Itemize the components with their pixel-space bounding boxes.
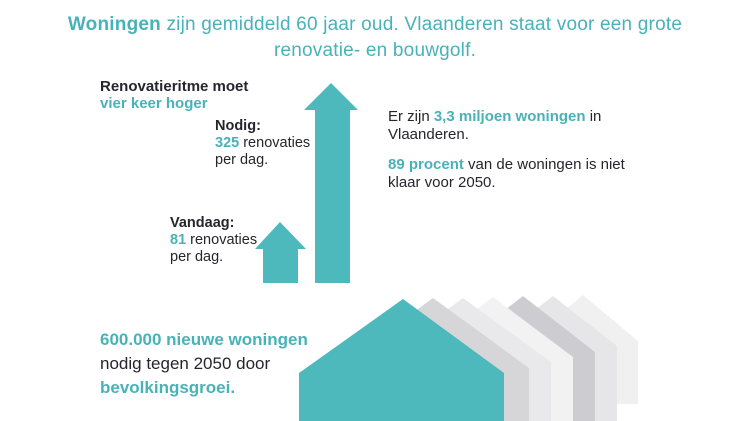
new-homes-line2: nodig tegen 2050 door bbox=[100, 352, 308, 376]
needed-per-day: per dag. bbox=[215, 152, 310, 169]
stock-paragraph-2: 89 procent van de woningen is niet klaar… bbox=[388, 156, 688, 192]
stock-p1-post: in bbox=[586, 108, 602, 125]
new-homes-line3: bevolkingsgroei. bbox=[100, 376, 308, 400]
title-line2: renovatie- en bouwgolf. bbox=[274, 40, 476, 61]
page-title: Woningen zijn gemiddeld 60 jaar oud. Vla… bbox=[0, 12, 750, 64]
stock-p1-pre: Er zijn bbox=[388, 108, 434, 125]
stock-p2-line2: klaar voor 2050. bbox=[388, 174, 496, 191]
needed-value-line: 325 renovaties bbox=[215, 135, 310, 152]
renovation-pace-heading: Renovatieritme moet vier keer hoger bbox=[100, 78, 248, 112]
up-arrow-small-icon bbox=[255, 222, 306, 283]
housing-stock-stats: Er zijn 3,3 miljoen woningen in Vlaander… bbox=[388, 108, 688, 192]
up-arrow-large-icon bbox=[304, 83, 358, 283]
title-highlight: Woningen bbox=[68, 14, 161, 35]
stock-p2-value: 89 procent bbox=[388, 156, 464, 173]
stock-p1-value: 3,3 miljoen woningen bbox=[434, 108, 586, 125]
needed-renovations-label: Nodig: 325 renovaties per dag. bbox=[215, 118, 310, 169]
stock-p1-line2: Vlaanderen. bbox=[388, 126, 469, 143]
stock-paragraph-1: Er zijn 3,3 miljoen woningen in Vlaander… bbox=[388, 108, 688, 144]
stock-p2-post: van de woningen is niet bbox=[464, 156, 625, 173]
today-per-day: per dag. bbox=[170, 249, 257, 266]
needed-value: 325 bbox=[215, 135, 239, 151]
infographic-canvas: Woningen zijn gemiddeld 60 jaar oud. Vla… bbox=[0, 0, 750, 421]
today-renovations-label: Vandaag: 81 renovaties per dag. bbox=[170, 215, 257, 266]
today-value: 81 bbox=[170, 232, 186, 248]
needed-label: Nodig: bbox=[215, 118, 310, 135]
new-homes-statement: 600.000 nieuwe woningen nodig tegen 2050… bbox=[100, 328, 308, 400]
new-homes-line1: 600.000 nieuwe woningen bbox=[100, 328, 308, 352]
today-value-line: 81 renovaties bbox=[170, 232, 257, 249]
renovation-pace-heading-dark: Renovatieritme moet bbox=[100, 78, 248, 95]
needed-unit: renovaties bbox=[239, 135, 310, 151]
title-line1-rest: zijn gemiddeld 60 jaar oud. Vlaanderen s… bbox=[161, 14, 682, 35]
today-unit: renovaties bbox=[186, 232, 257, 248]
renovation-pace-heading-accent: vier keer hoger bbox=[100, 95, 248, 112]
today-label: Vandaag: bbox=[170, 215, 257, 232]
